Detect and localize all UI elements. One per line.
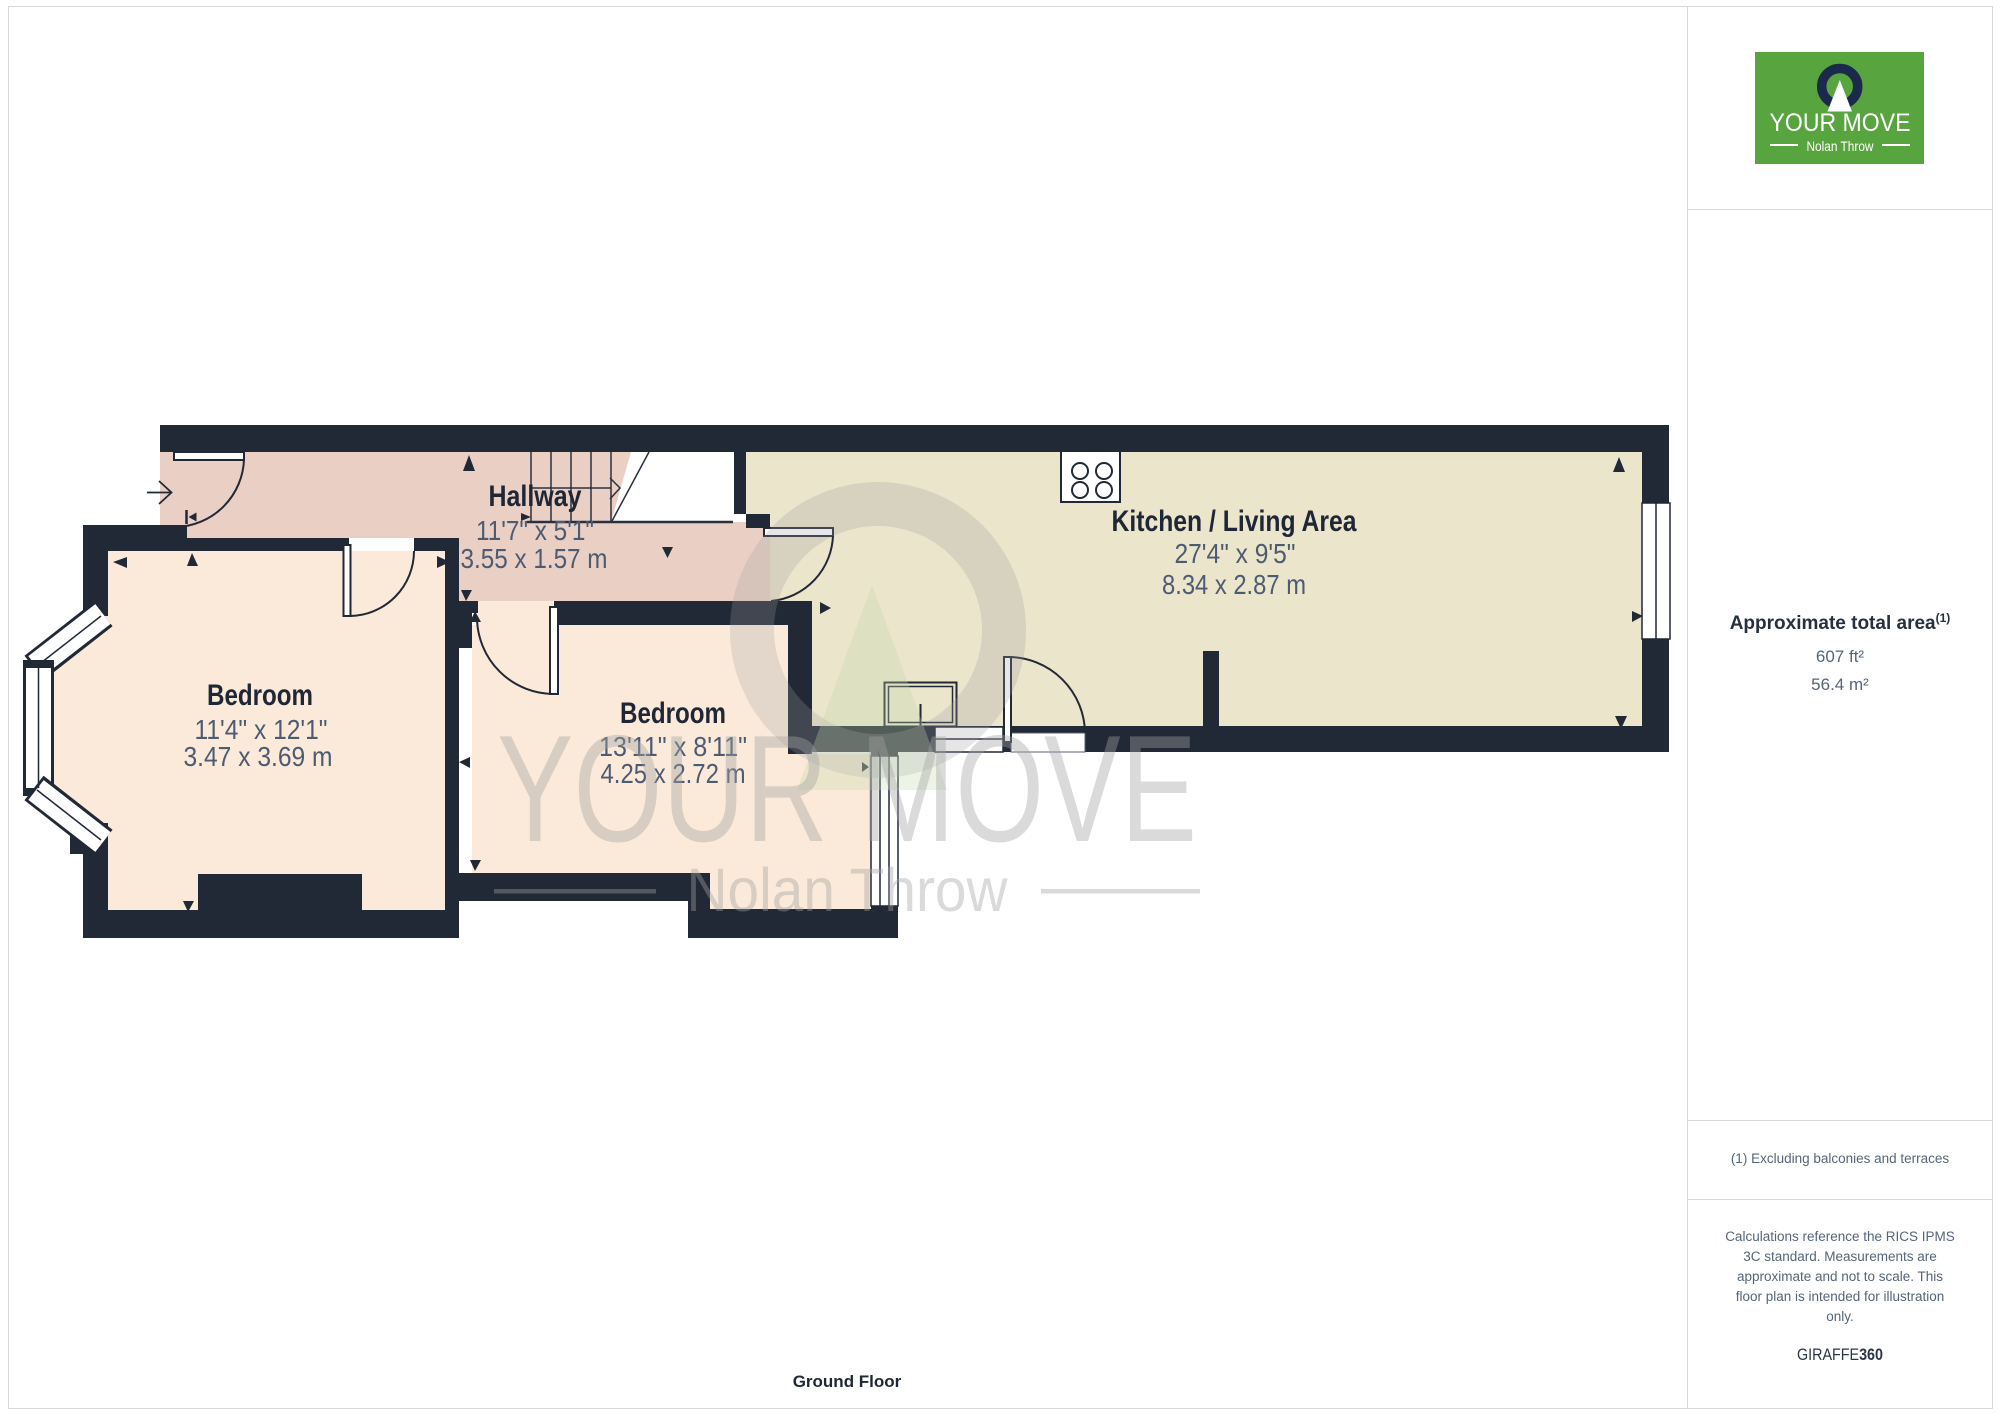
svg-text:Nolan Throw: Nolan Throw — [687, 856, 1009, 924]
svg-text:floor plan is intended for ill: floor plan is intended for illustration — [1736, 1289, 1945, 1304]
svg-text:approximate and not to scale.: approximate and not to scale. This — [1737, 1269, 1943, 1284]
svg-text:11'7" x 5'1": 11'7" x 5'1" — [476, 515, 594, 546]
svg-text:Hallway: Hallway — [489, 480, 582, 513]
svg-text:only.: only. — [1826, 1309, 1854, 1324]
svg-text:56.4 m²: 56.4 m² — [1811, 675, 1869, 694]
svg-text:3.47 x 3.69 m: 3.47 x 3.69 m — [184, 741, 333, 772]
svg-text:607 ft²: 607 ft² — [1816, 647, 1865, 666]
svg-text:GIRAFFE360: GIRAFFE360 — [1797, 1345, 1883, 1364]
svg-text:3C standard. Measurements are: 3C standard. Measurements are — [1743, 1249, 1937, 1264]
svg-text:Approximate total area(1): Approximate total area(1) — [1730, 611, 1951, 634]
svg-text:Kitchen / Living Area: Kitchen / Living Area — [1112, 505, 1357, 538]
svg-text:YOUR MOVE: YOUR MOVE — [1770, 109, 1911, 137]
svg-text:YOUR MOVE: YOUR MOVE — [497, 704, 1197, 874]
svg-text:Bedroom: Bedroom — [207, 679, 313, 712]
svg-text:27'4" x 9'5": 27'4" x 9'5" — [1175, 538, 1296, 569]
svg-text:3.55 x 1.57 m: 3.55 x 1.57 m — [461, 543, 608, 574]
svg-text:(1) Excluding balconies and te: (1) Excluding balconies and terraces — [1731, 1151, 1950, 1166]
svg-text:Ground Floor: Ground Floor — [793, 1372, 902, 1391]
svg-text:Calculations reference the RIC: Calculations reference the RICS IPMS — [1725, 1229, 1955, 1244]
svg-text:8.34 x 2.87 m: 8.34 x 2.87 m — [1162, 569, 1306, 600]
svg-text:Nolan Throw: Nolan Throw — [1807, 138, 1875, 154]
